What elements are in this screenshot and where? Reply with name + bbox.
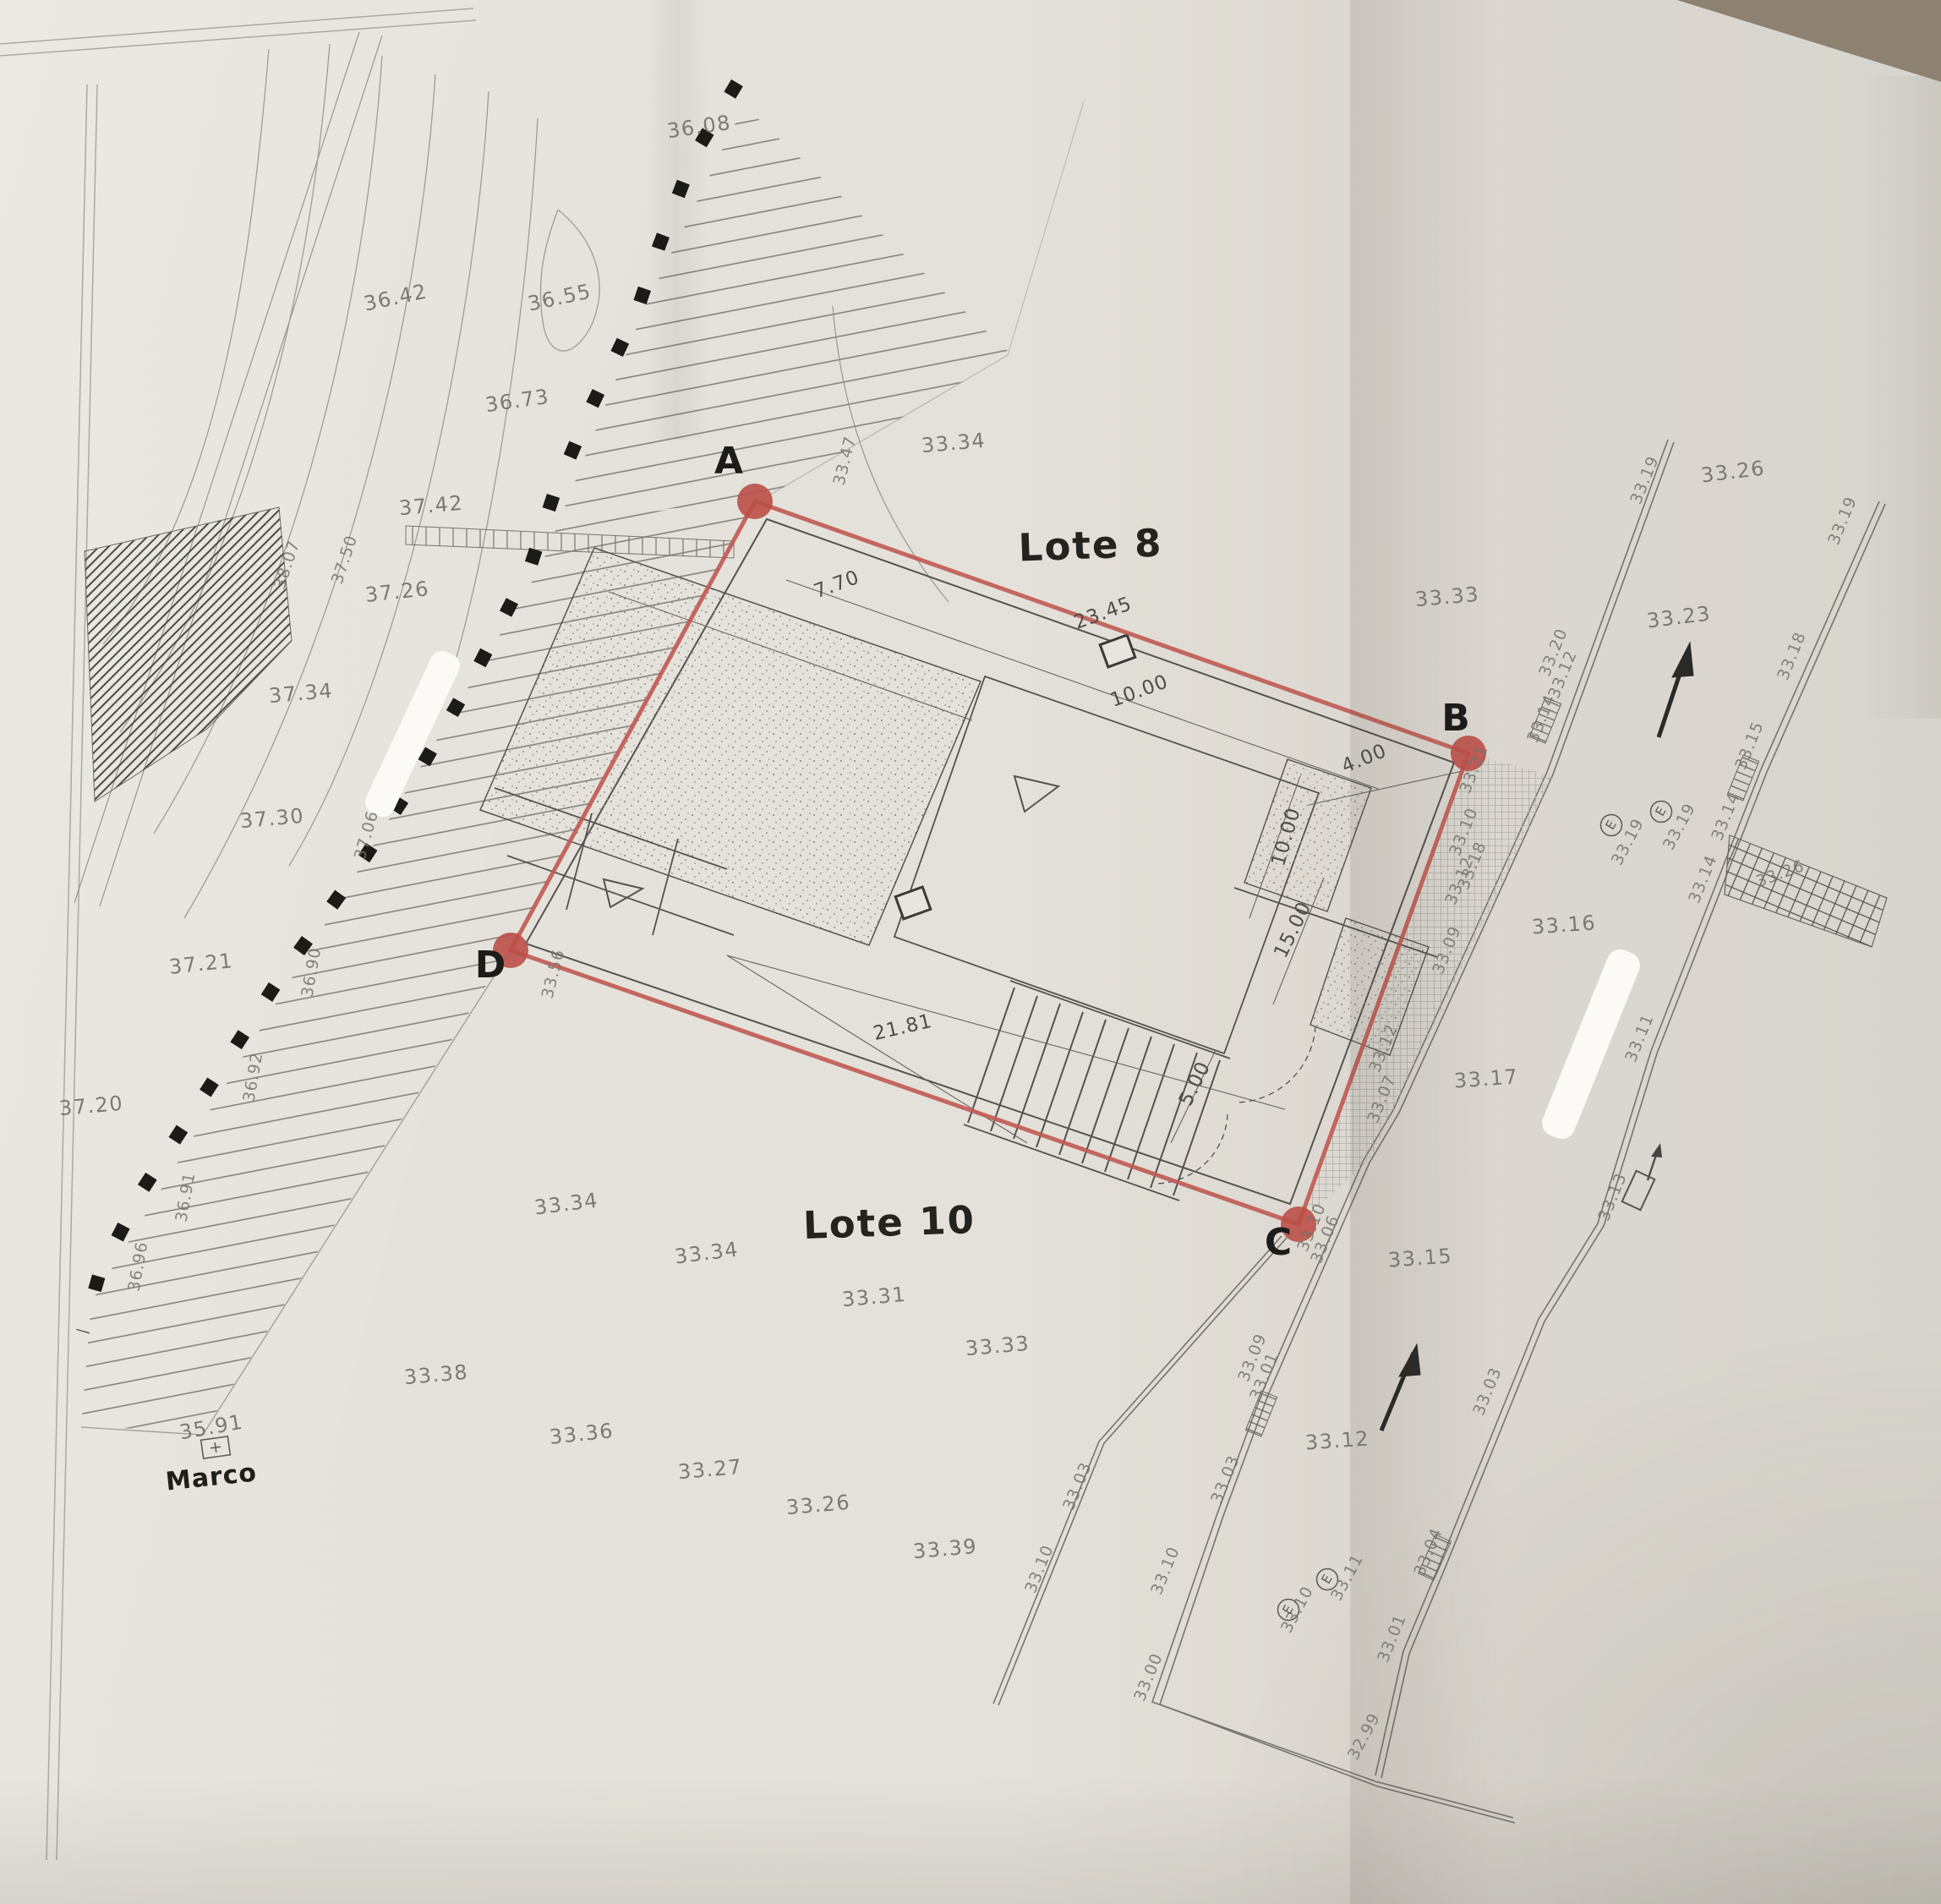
- elevation-label: 33.12: [1304, 1428, 1370, 1453]
- pole-letter: E: [1604, 818, 1619, 832]
- dimension-label: 7.70: [812, 568, 862, 602]
- elevation-label: 36.55: [526, 281, 593, 314]
- elevation-label: 36.73: [484, 386, 551, 415]
- photo-of-survey-plan: 36.0836.4236.5536.7337.4237.2637.3437.30…: [0, 0, 1941, 1904]
- station-elevation-label: 33.11: [1329, 1551, 1367, 1603]
- station-elevation-label: 33.11: [1623, 1012, 1657, 1064]
- elevation-label: 37.34: [268, 681, 334, 707]
- elevation-label: 33.33: [1414, 584, 1480, 610]
- station-elevation-label: 33.26: [1754, 858, 1807, 890]
- elevation-label: 33.36: [549, 1420, 615, 1447]
- corner-label: D: [475, 947, 506, 984]
- station-elevation-label: 33.12: [1367, 1022, 1401, 1075]
- station-elevation-label: 37.06: [353, 809, 382, 862]
- station-elevation-label: 33.14: [1687, 853, 1720, 905]
- station-elevation-label: 37.50: [330, 533, 360, 586]
- station-elevation-label: 32.99: [1346, 1710, 1384, 1762]
- pole-letter: E: [1654, 805, 1669, 818]
- lot-label: Lote 10: [802, 1201, 976, 1245]
- station-elevation-label: 33.04: [1412, 1526, 1446, 1578]
- station-elevation-label: 33.00: [1132, 1651, 1166, 1704]
- elevation-label: 37.42: [398, 493, 464, 519]
- benchmark-label: Marco: [165, 1460, 259, 1495]
- elevation-label: 33.34: [921, 430, 987, 457]
- station-elevation-label: 33.47: [832, 435, 860, 487]
- station-elevation-label: 33.03: [1209, 1453, 1243, 1506]
- dimension-label: 5.00: [1177, 1059, 1215, 1109]
- station-elevation-label: 33.56: [540, 948, 568, 1000]
- station-elevation-label: 33.13: [1596, 1171, 1630, 1223]
- elevation-label: 33.17: [1453, 1066, 1519, 1091]
- elevation-label: 33.38: [403, 1362, 469, 1388]
- elevation-label: 37.20: [58, 1093, 124, 1119]
- station-elevation-label: 33.19: [1628, 454, 1662, 506]
- station-elevation-label: 33.07: [1365, 1073, 1399, 1125]
- station-elevation-label: 33.09: [1430, 924, 1464, 977]
- elevation-label: 33.34: [533, 1190, 600, 1217]
- station-elevation-label: 36.96: [126, 1240, 150, 1293]
- elevation-label: 37.21: [168, 950, 234, 977]
- station-elevation-label: 33.03: [1471, 1365, 1505, 1418]
- dimension-label: 10.00: [1269, 806, 1304, 868]
- dimension-label: 4.00: [1339, 741, 1390, 777]
- corner-label: A: [714, 443, 743, 480]
- dimension-label: 10.00: [1108, 672, 1171, 711]
- station-elevation-label: 33.18: [1775, 630, 1809, 682]
- elevation-label: 37.30: [239, 806, 305, 832]
- elevation-label: 36.42: [362, 281, 429, 314]
- elevation-label: 33.26: [785, 1492, 851, 1518]
- station-elevation-label: 33.10: [1023, 1543, 1057, 1595]
- station-elevation-label: 33.10: [1149, 1545, 1183, 1597]
- elevation-label: 37.26: [364, 578, 430, 605]
- plan-labels-layer: 36.0836.4236.5536.7337.4237.2637.3437.30…: [0, 0, 1941, 1904]
- dimension-label: 21.81: [872, 1012, 934, 1044]
- elevation-label: 33.26: [1700, 457, 1767, 485]
- station-elevation-label: 33.19: [1826, 495, 1860, 547]
- dimension-label: 15.00: [1271, 899, 1315, 961]
- station-elevation-label: 33.03: [1061, 1460, 1095, 1513]
- elevation-label: 33.15: [1387, 1245, 1453, 1270]
- elevation-label: 33.34: [674, 1239, 741, 1267]
- elevation-label: 35.91: [178, 1412, 244, 1443]
- corner-label: C: [1265, 1224, 1292, 1261]
- station-elevation-label: 33.15: [1733, 719, 1767, 772]
- station-elevation-label: 33.21: [1457, 743, 1491, 796]
- lot-label: Lote 8: [1018, 524, 1163, 567]
- elevation-label: 33.16: [1531, 912, 1597, 937]
- dimension-label: 23.45: [1072, 594, 1135, 633]
- station-elevation-label: 36.91: [173, 1171, 198, 1223]
- elevation-label: 36.08: [666, 112, 733, 141]
- elevation-label: 33.23: [1646, 603, 1713, 631]
- elevation-label: 33.33: [965, 1333, 1031, 1360]
- elevation-label: 33.27: [677, 1457, 743, 1483]
- station-elevation-label: 38.07: [272, 539, 303, 591]
- station-elevation-label: 33.14: [1525, 692, 1559, 745]
- station-elevation-label: 33.19: [1661, 801, 1699, 852]
- elevation-label: 33.31: [841, 1284, 907, 1310]
- elevation-label: 33.39: [912, 1536, 978, 1562]
- corner-label: B: [1441, 700, 1470, 737]
- station-elevation-label: 36.92: [241, 1051, 265, 1103]
- station-elevation-label: 36.90: [299, 946, 324, 999]
- station-elevation-label: 33.01: [1375, 1612, 1409, 1665]
- station-elevation-label: 33.14: [1709, 791, 1743, 843]
- pole-letter: E: [1320, 1573, 1335, 1586]
